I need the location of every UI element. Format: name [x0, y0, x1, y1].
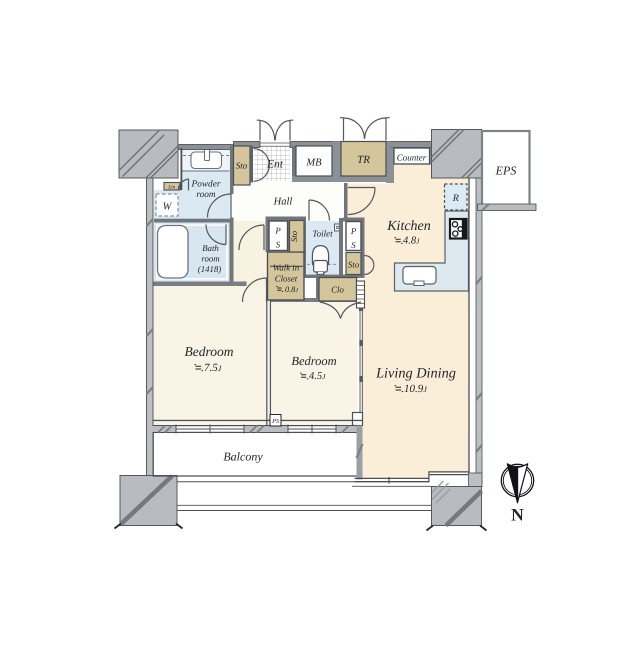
svg-text:Sto: Sto	[289, 230, 299, 242]
svg-text:room: room	[196, 190, 216, 200]
svg-text:Clo: Clo	[331, 285, 344, 295]
svg-text:R: R	[452, 193, 459, 204]
svg-text:7.5J: 7.5J	[204, 362, 222, 374]
svg-text:Walk in: Walk in	[273, 263, 300, 273]
svg-text:Balcony: Balcony	[223, 450, 263, 464]
svg-text:Ent: Ent	[266, 159, 284, 171]
svg-text:4.8J: 4.8J	[403, 236, 420, 247]
svg-text:Closet: Closet	[275, 274, 298, 284]
svg-text:TR: TR	[357, 154, 370, 166]
svg-text:W: W	[163, 202, 173, 213]
svg-text:P: P	[350, 226, 357, 236]
svg-text:Counter: Counter	[397, 153, 427, 163]
svg-text:Lin: Lin	[167, 184, 175, 190]
svg-text:Bath: Bath	[202, 243, 219, 253]
svg-text:Sto: Sto	[236, 161, 248, 171]
svg-text:Living Dining: Living Dining	[375, 366, 456, 382]
svg-text:S: S	[276, 240, 281, 250]
svg-text:0.8J: 0.8J	[285, 285, 298, 294]
svg-text:Sto: Sto	[348, 260, 360, 270]
svg-text:P: P	[274, 226, 281, 236]
svg-text:EPS: EPS	[495, 164, 517, 178]
svg-text:room: room	[201, 254, 219, 264]
svg-text:S: S	[351, 240, 356, 250]
svg-text:10.9J: 10.9J	[404, 383, 427, 395]
svg-text:PS: PS	[271, 418, 279, 425]
svg-text:Powder: Powder	[191, 180, 221, 190]
svg-text:4.5J: 4.5J	[309, 371, 326, 382]
svg-text:Bedroom: Bedroom	[185, 344, 234, 359]
svg-text:MB: MB	[305, 158, 322, 169]
svg-text:Bedroom: Bedroom	[291, 354, 336, 368]
svg-text:N: N	[511, 505, 524, 525]
svg-text:Toilet: Toilet	[312, 229, 333, 239]
svg-text:Kitchen: Kitchen	[386, 219, 431, 234]
svg-text:(1418): (1418)	[198, 264, 222, 274]
svg-text:Hall: Hall	[273, 197, 293, 208]
